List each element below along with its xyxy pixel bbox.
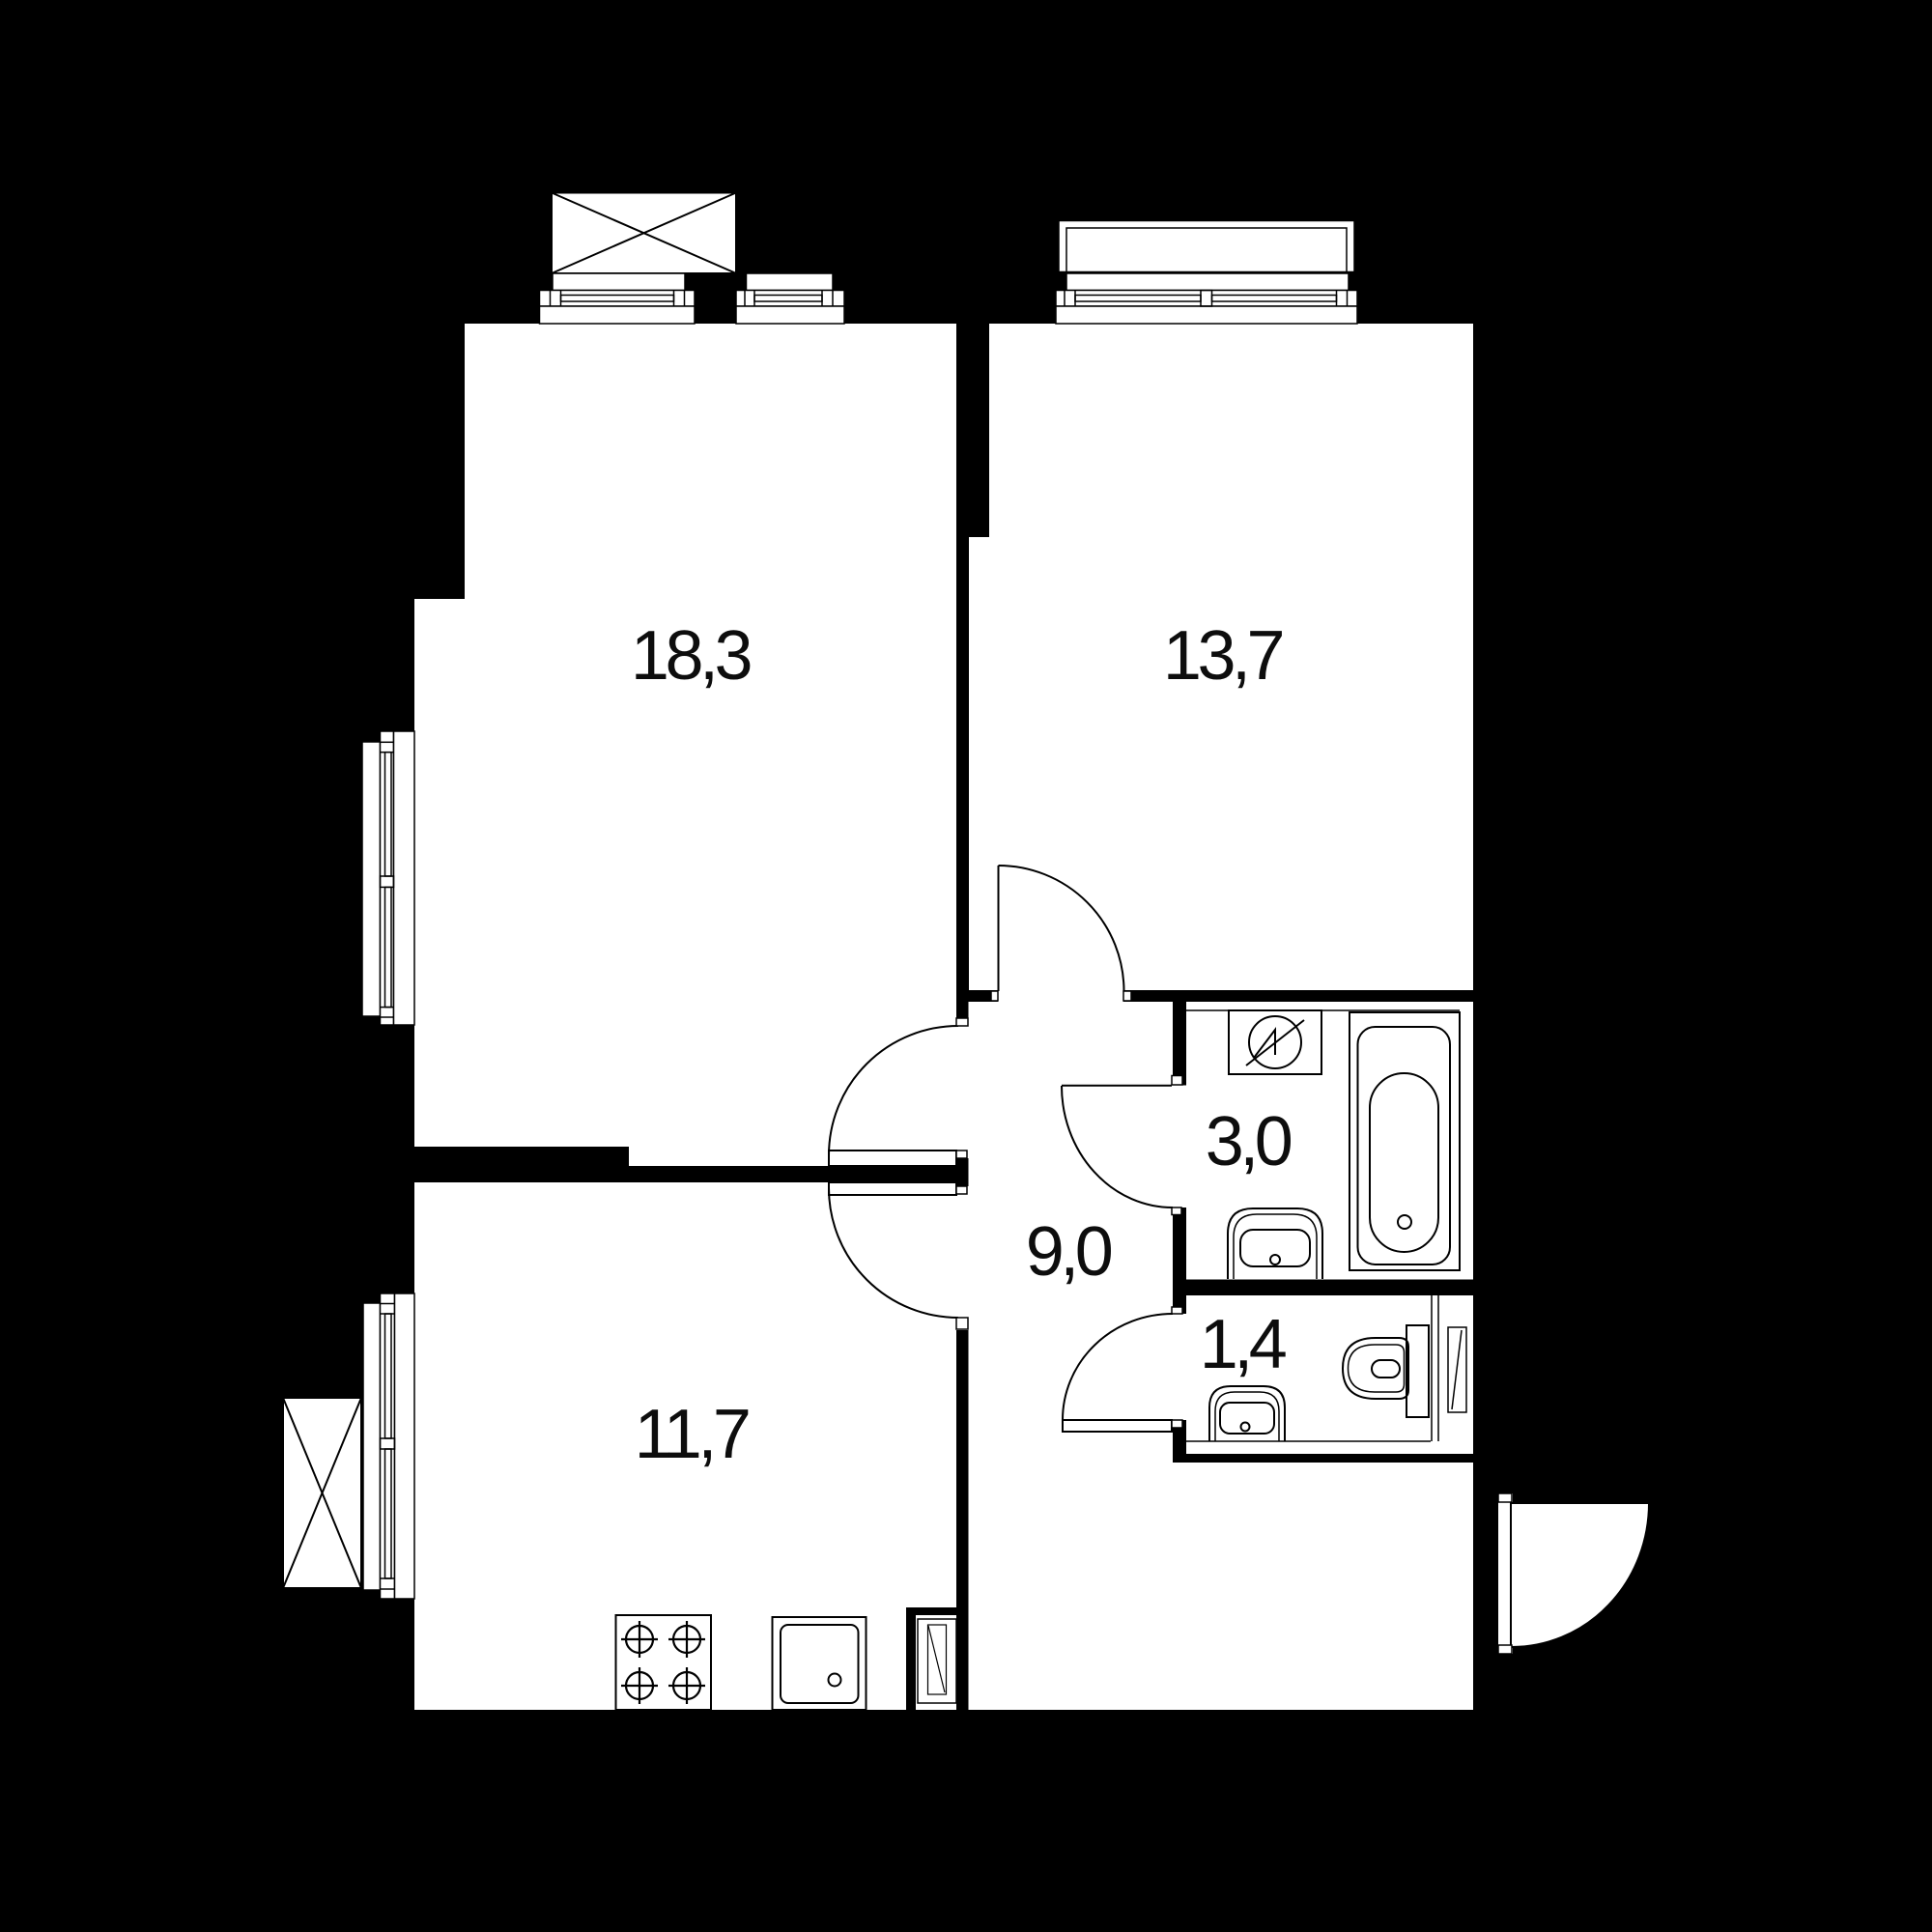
svg-text:11,7: 11,7 bbox=[635, 1396, 749, 1473]
svg-text:3,0: 3,0 bbox=[1206, 1103, 1292, 1180]
svg-text:1,4: 1,4 bbox=[1200, 1306, 1286, 1383]
svg-text:9,0: 9,0 bbox=[1026, 1213, 1112, 1291]
svg-text:13,7: 13,7 bbox=[1163, 617, 1283, 695]
svg-text:18,3: 18,3 bbox=[631, 617, 751, 695]
